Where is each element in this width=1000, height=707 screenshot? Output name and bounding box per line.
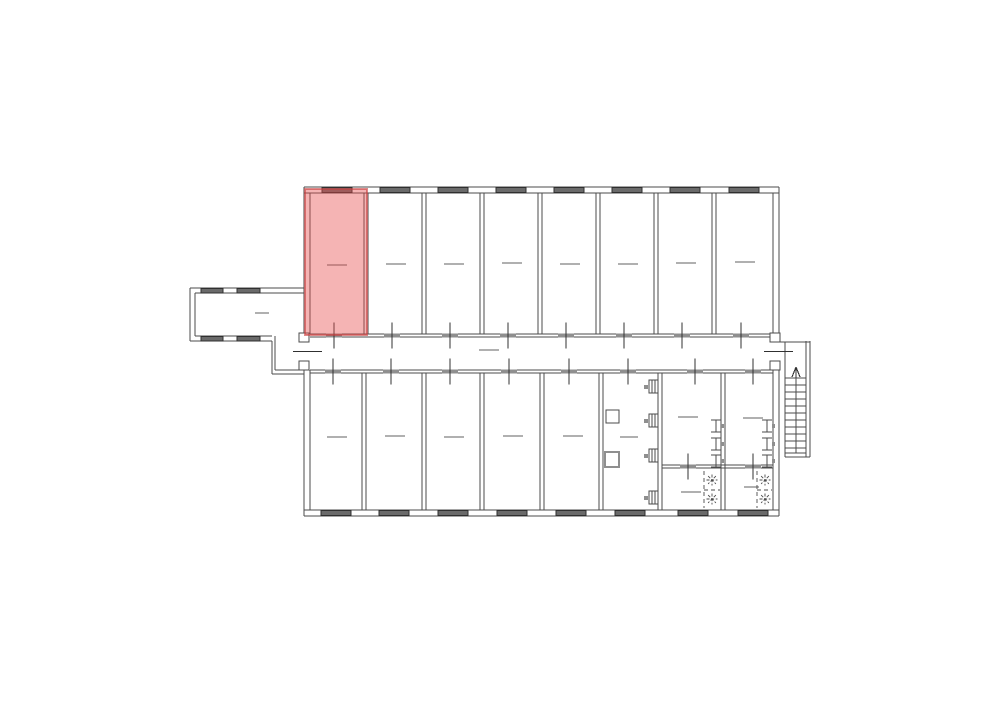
- window: [497, 511, 527, 516]
- basin-fixture: [644, 496, 648, 500]
- highlighted-room-overlay[interactable]: [305, 189, 367, 335]
- toilet-fixture: [721, 442, 724, 446]
- basin-fixture: [649, 449, 658, 462]
- door-jamb: [770, 361, 780, 370]
- square-fixture: [605, 452, 619, 467]
- window: [201, 337, 223, 342]
- window: [738, 511, 768, 516]
- window: [438, 511, 468, 516]
- window: [237, 289, 260, 294]
- basin-fixture: [644, 454, 648, 458]
- toilet-fixture: [772, 442, 775, 446]
- window: [554, 188, 584, 193]
- floor-plan-svg: [0, 0, 1000, 707]
- window: [438, 188, 468, 193]
- basin-fixture: [644, 385, 648, 389]
- basin-fixture: [649, 491, 658, 504]
- toilet-fixture: [721, 459, 724, 463]
- toilet-fixture: [772, 424, 775, 428]
- basin-fixture: [644, 419, 648, 423]
- stair-up-arrow-icon: [792, 367, 796, 377]
- door-jamb: [299, 361, 309, 370]
- window: [612, 188, 642, 193]
- window: [729, 188, 759, 193]
- window: [496, 188, 526, 193]
- stair-up-arrow-icon: [796, 367, 800, 377]
- basin-fixture: [649, 414, 658, 427]
- door-jamb: [770, 333, 780, 342]
- floor-plan-canvas: [0, 0, 1000, 707]
- window: [321, 511, 351, 516]
- window: [380, 188, 410, 193]
- window: [670, 188, 700, 193]
- window: [678, 511, 708, 516]
- window: [201, 289, 223, 294]
- basin-fixture: [649, 380, 658, 393]
- window: [237, 337, 260, 342]
- window: [556, 511, 586, 516]
- toilet-fixture: [721, 424, 724, 428]
- window: [379, 511, 409, 516]
- toilet-fixture: [772, 459, 775, 463]
- square-fixture: [606, 410, 619, 423]
- window: [615, 511, 645, 516]
